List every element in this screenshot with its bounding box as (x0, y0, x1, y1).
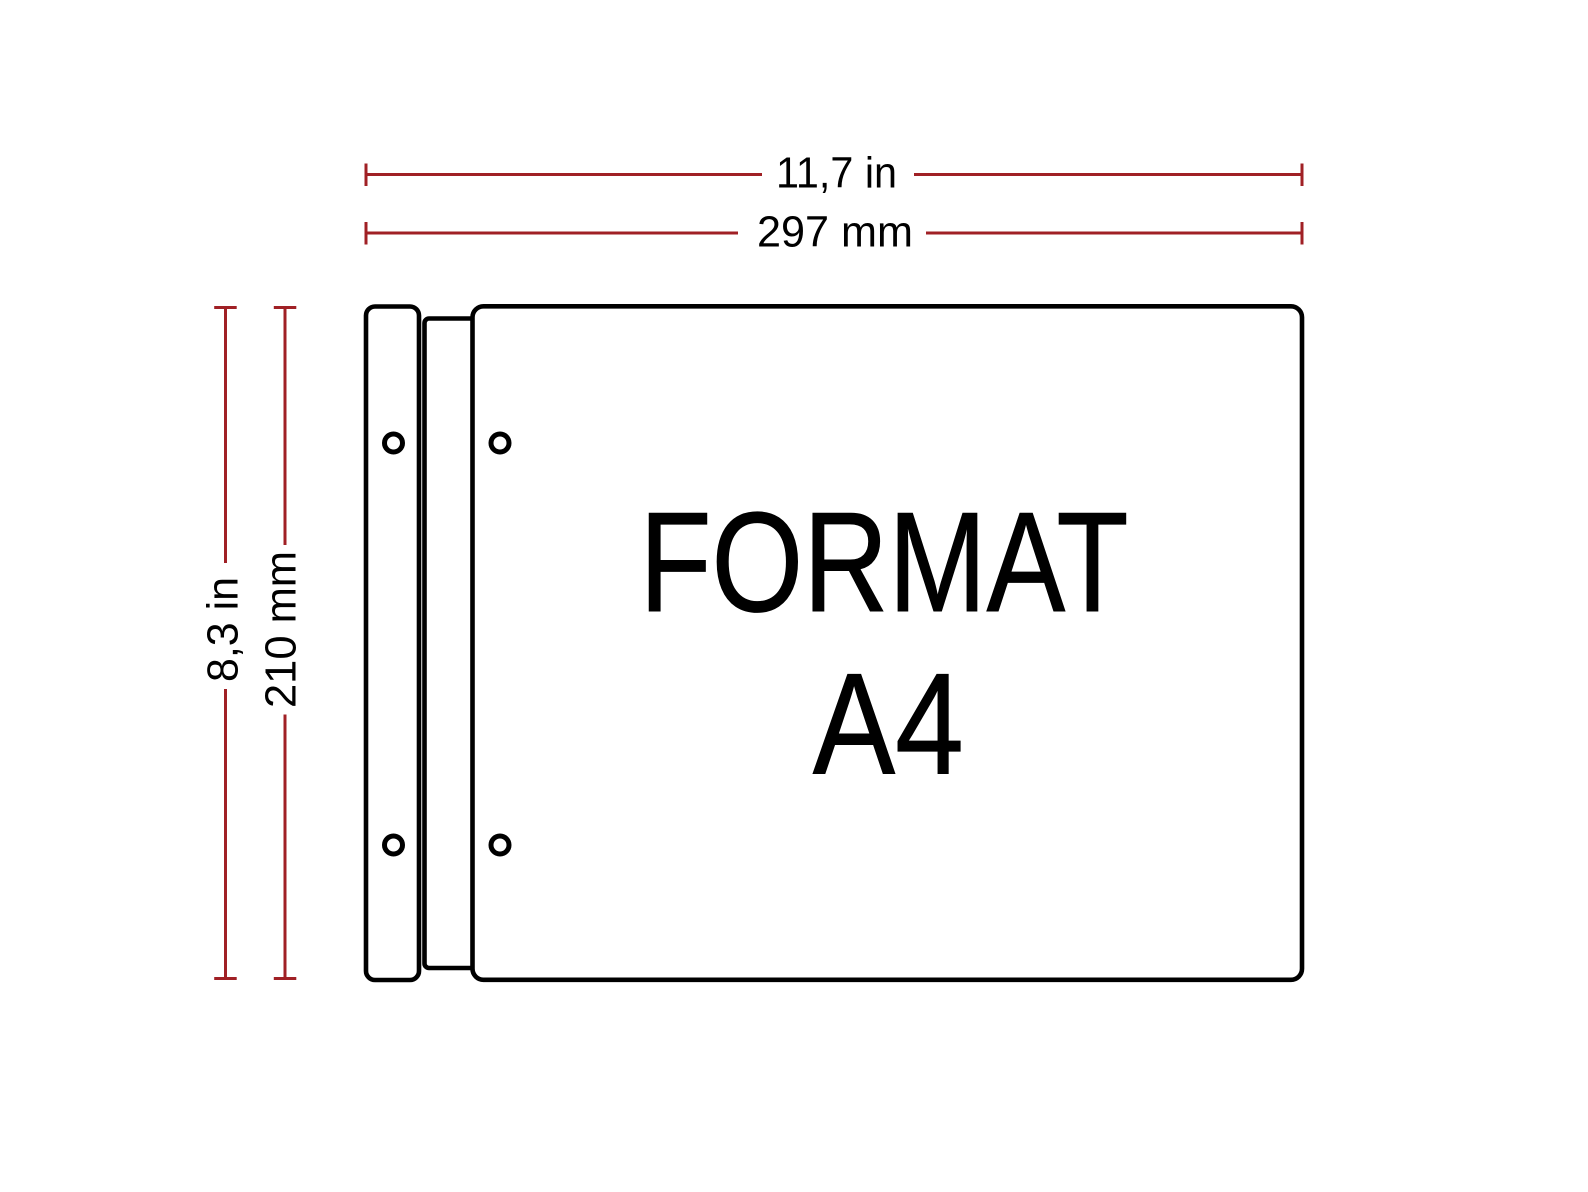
svg-text:A4: A4 (813, 644, 964, 805)
svg-text:210 mm: 210 mm (257, 551, 306, 708)
svg-text:8,3 in: 8,3 in (199, 577, 248, 682)
svg-text:297 mm: 297 mm (757, 208, 913, 257)
svg-text:11,7 in: 11,7 in (776, 149, 897, 198)
svg-text:FORMAT: FORMAT (640, 483, 1129, 642)
